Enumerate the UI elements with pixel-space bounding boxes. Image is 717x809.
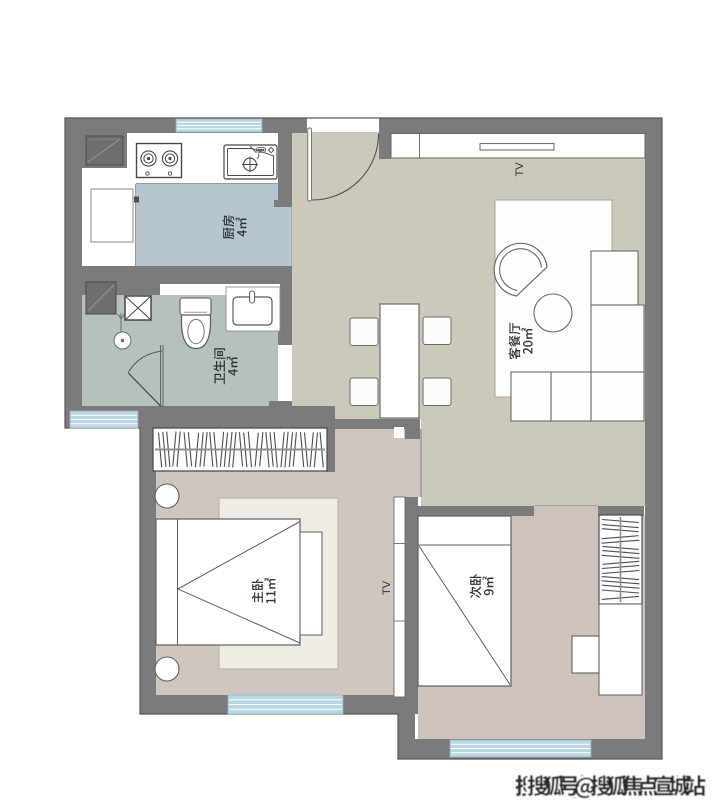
svg-text:TV: TV (514, 162, 526, 177)
svg-text:TV: TV (381, 580, 393, 595)
